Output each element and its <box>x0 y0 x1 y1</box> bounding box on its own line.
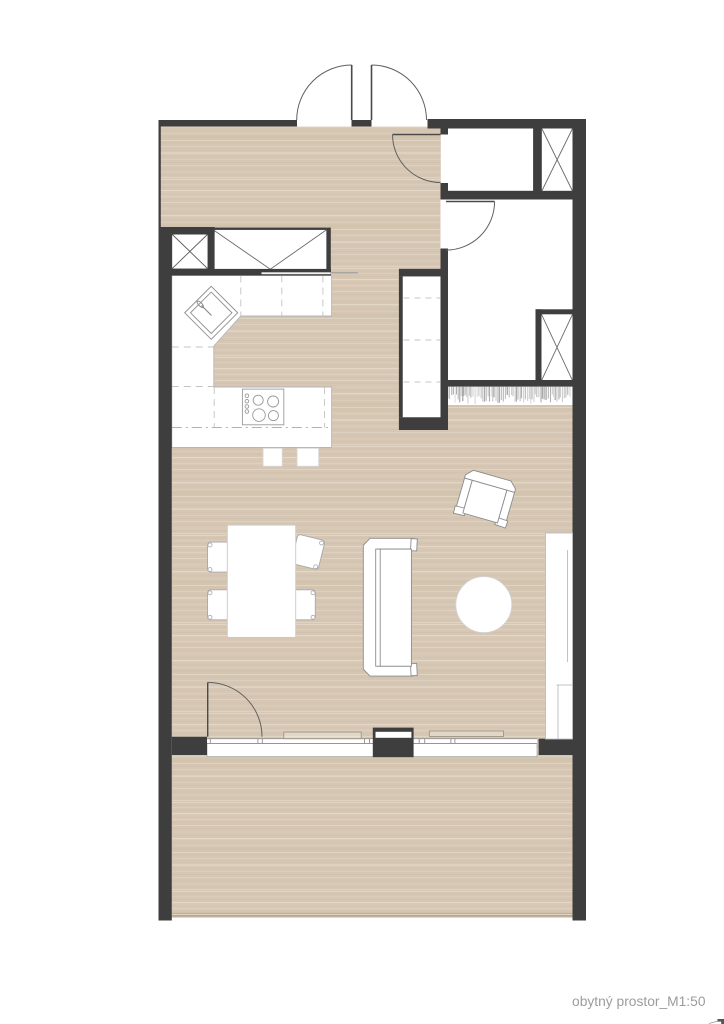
svg-text:obytný prostor_M1:50: obytný prostor_M1:50 <box>572 994 706 1009</box>
